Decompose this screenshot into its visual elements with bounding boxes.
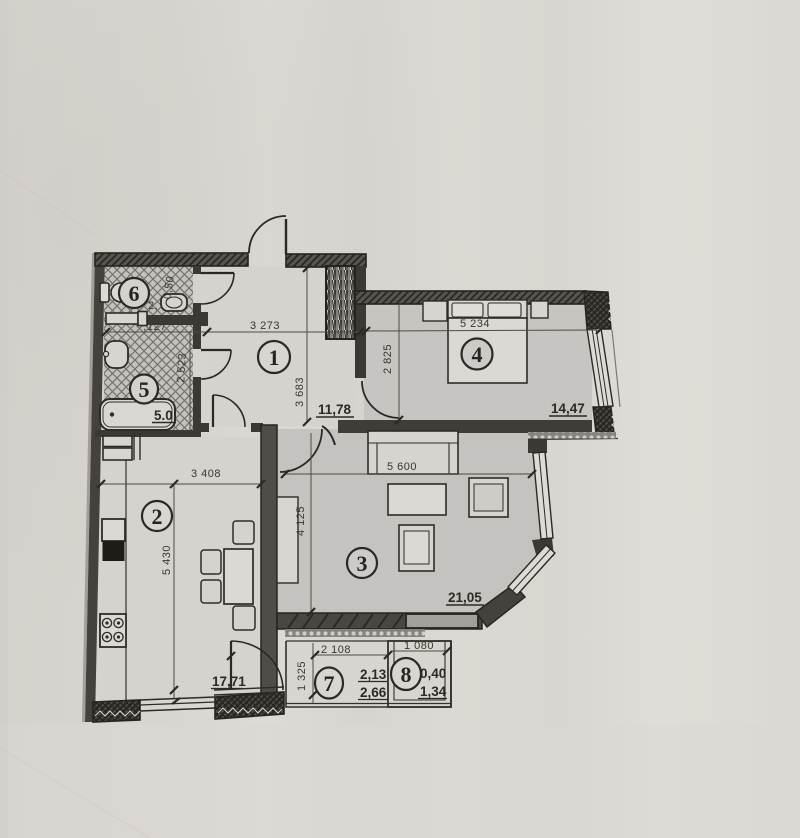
svg-text:2 108: 2 108 (321, 644, 351, 656)
svg-text:3 273: 3 273 (250, 320, 280, 332)
svg-text:7: 7 (324, 671, 335, 696)
svg-text:5: 5 (139, 377, 150, 402)
svg-text:2,66: 2,66 (360, 685, 387, 700)
svg-text:1 325: 1 325 (296, 661, 308, 691)
svg-text:5 430: 5 430 (161, 545, 173, 575)
svg-text:5 600: 5 600 (387, 461, 417, 473)
svg-text:1,34: 1,34 (420, 684, 447, 699)
svg-text:1 080: 1 080 (404, 640, 434, 652)
svg-text:1: 1 (269, 345, 280, 370)
svg-text:17,71: 17,71 (212, 674, 246, 689)
svg-text:,127: ,127 (143, 321, 166, 333)
svg-text:8: 8 (401, 662, 412, 687)
svg-text:2,: 2, (148, 300, 158, 312)
svg-text:4 125: 4 125 (295, 506, 307, 536)
svg-text:3 683: 3 683 (294, 377, 306, 407)
svg-text:2,13: 2,13 (360, 667, 387, 682)
svg-text:3 408: 3 408 (191, 468, 221, 480)
svg-text:11,78: 11,78 (318, 402, 352, 417)
svg-text:0,40: 0,40 (420, 666, 446, 681)
svg-text:14,47: 14,47 (551, 401, 585, 416)
svg-text:6: 6 (129, 281, 140, 306)
svg-text:2 825: 2 825 (382, 344, 394, 374)
svg-text:4: 4 (472, 342, 483, 367)
svg-text:5.0: 5.0 (154, 408, 173, 423)
svg-text:2: 2 (152, 504, 163, 529)
svg-text:5 234: 5 234 (460, 318, 490, 330)
svg-text:2 523: 2 523 (175, 353, 189, 384)
svg-text:21,05: 21,05 (448, 590, 482, 605)
svg-text:3: 3 (357, 551, 368, 576)
